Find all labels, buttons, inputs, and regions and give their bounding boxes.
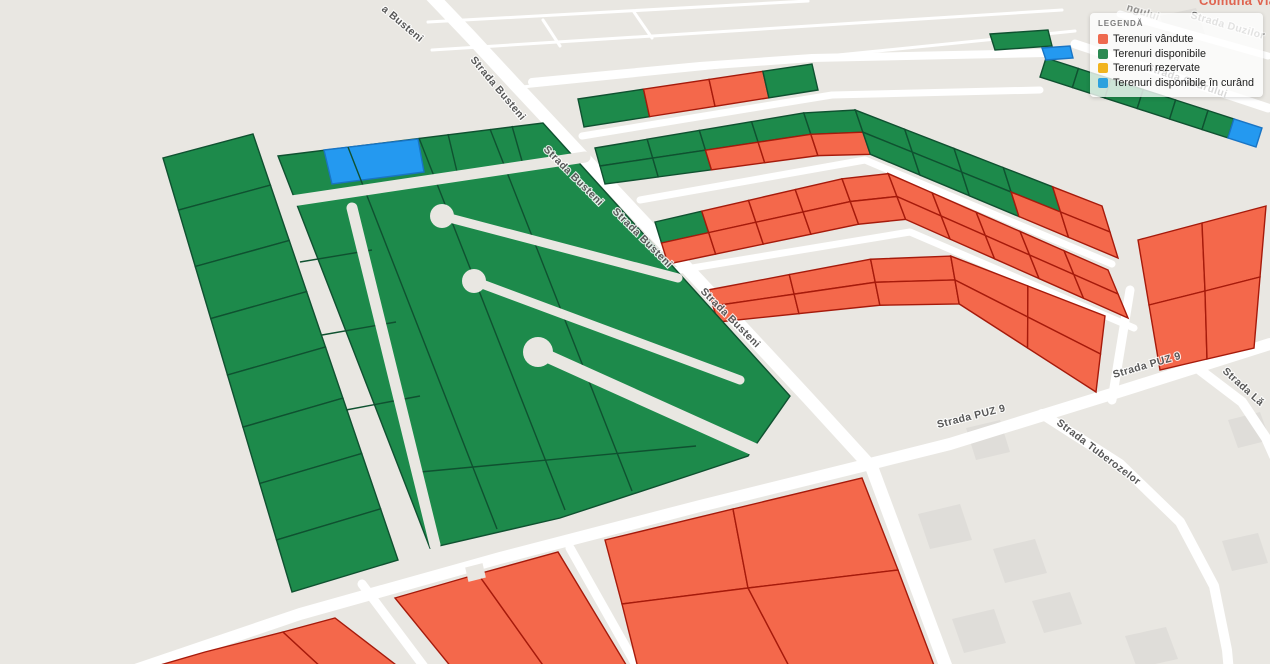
map-canvas[interactable]: a BusteniStrada BusteniStrada BusteniStr…	[0, 0, 1270, 664]
strip-lower-parcel[interactable]	[871, 256, 955, 282]
parcel-codrului-blue[interactable]	[1042, 46, 1073, 60]
legend-item: Terenuri disponibile	[1098, 47, 1254, 62]
legend-swatch	[1098, 78, 1108, 88]
strip-upper-parcel[interactable]	[804, 110, 863, 134]
cul-de-sac-bulb	[430, 204, 454, 228]
strip-middle-parcel[interactable]	[850, 196, 905, 224]
legend-items: Terenuri vânduteTerenuri disponibileTere…	[1098, 32, 1254, 90]
legend: LEGENDĂ Terenuri vânduteTerenuri disponi…	[1090, 13, 1263, 97]
legend-swatch	[1098, 63, 1108, 73]
legend-item: Terenuri vândute	[1098, 32, 1254, 47]
cul-de-sac-bulb	[462, 269, 486, 293]
legend-item: Terenuri rezervate	[1098, 61, 1254, 76]
region-label: Comuna Vlăd	[1199, 0, 1270, 8]
cul-de-sac-bulb	[523, 337, 553, 367]
map-app: a BusteniStrada BusteniStrada BusteniStr…	[0, 0, 1270, 664]
legend-swatch	[1098, 49, 1108, 59]
legend-item: Terenuri disponibile în curând	[1098, 76, 1254, 91]
parcel-codrului-start[interactable]	[990, 30, 1052, 50]
legend-item-label: Terenuri disponibile în curând	[1113, 77, 1254, 89]
legend-swatch	[1098, 34, 1108, 44]
strip-lower-parcel[interactable]	[875, 280, 959, 305]
legend-item-label: Terenuri vândute	[1113, 33, 1193, 45]
legend-item-label: Terenuri rezervate	[1113, 62, 1200, 74]
block-e-4[interactable]	[1205, 277, 1260, 359]
legend-item-label: Terenuri disponibile	[1113, 48, 1206, 60]
legend-title: LEGENDĂ	[1098, 19, 1254, 28]
strip-upper-parcel[interactable]	[811, 132, 871, 155]
